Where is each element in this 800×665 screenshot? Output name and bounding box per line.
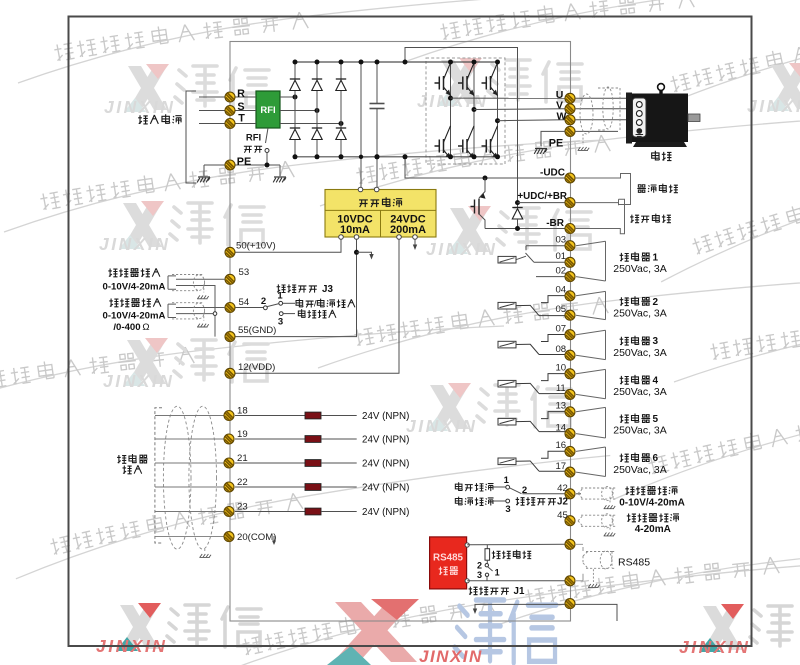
- svg-text:JINXIN: JINXIN: [747, 96, 800, 116]
- svg-text:21: 21: [237, 453, 248, 464]
- svg-text:24V (NPN): 24V (NPN): [362, 483, 409, 494]
- svg-text:45: 45: [557, 510, 568, 521]
- svg-text:4-20mA: 4-20mA: [635, 524, 671, 535]
- svg-text:Ω: Ω: [142, 322, 149, 333]
- svg-text:RS485: RS485: [433, 553, 464, 564]
- svg-text:16: 16: [555, 440, 566, 451]
- svg-text:J1: J1: [514, 586, 525, 597]
- svg-text:RFI: RFI: [260, 105, 275, 116]
- svg-text:250Vac, 3A: 250Vac, 3A: [613, 464, 667, 476]
- svg-text:14: 14: [555, 422, 566, 433]
- svg-text:+UDC/+BR: +UDC/+BR: [517, 191, 567, 202]
- svg-text:3: 3: [505, 504, 510, 515]
- svg-text:200mA: 200mA: [390, 224, 426, 236]
- svg-text:R: R: [237, 88, 245, 100]
- svg-text:W: W: [557, 111, 567, 123]
- svg-text:JINXIN: JINXIN: [104, 97, 175, 117]
- svg-text:24V (NPN): 24V (NPN): [362, 507, 409, 518]
- svg-text:RS485: RS485: [618, 556, 650, 568]
- svg-text:S: S: [237, 101, 244, 113]
- svg-text:22: 22: [237, 477, 248, 488]
- svg-text:02: 02: [555, 265, 566, 276]
- svg-text:23: 23: [237, 501, 248, 512]
- svg-text:24V (NPN): 24V (NPN): [362, 459, 409, 470]
- svg-text:0-10V/4-20mA: 0-10V/4-20mA: [103, 281, 166, 292]
- svg-text:250Vac, 3A: 250Vac, 3A: [613, 425, 667, 437]
- svg-text:20(COM): 20(COM): [237, 532, 276, 543]
- svg-text:JINXIN: JINXIN: [426, 239, 497, 259]
- svg-text:01: 01: [555, 251, 566, 262]
- svg-text:-UDC: -UDC: [540, 168, 565, 179]
- svg-text:J3: J3: [322, 284, 333, 295]
- svg-text:0-10V/4-20mA: 0-10V/4-20mA: [619, 498, 685, 509]
- svg-text:55(GND): 55(GND): [238, 325, 276, 336]
- svg-text:54: 54: [239, 297, 250, 308]
- svg-text:24V (NPN): 24V (NPN): [362, 435, 409, 446]
- svg-text:PE: PE: [549, 138, 563, 150]
- svg-text:/0-400: /0-400: [113, 322, 140, 333]
- svg-text:RFI: RFI: [246, 133, 261, 144]
- svg-text:50(+10V): 50(+10V): [236, 240, 276, 251]
- svg-text:5: 5: [653, 414, 659, 425]
- svg-text:11: 11: [556, 383, 566, 394]
- svg-text:0-10V/4-20mA: 0-10V/4-20mA: [103, 310, 166, 321]
- svg-text:10: 10: [555, 363, 566, 374]
- svg-text:17: 17: [555, 461, 566, 472]
- svg-text:3: 3: [653, 336, 659, 347]
- svg-text:JINXIN: JINXIN: [419, 647, 483, 665]
- svg-text:6: 6: [653, 453, 659, 464]
- svg-text:JINXIN: JINXIN: [406, 416, 477, 436]
- svg-text:08: 08: [555, 344, 566, 355]
- svg-text:24V (NPN): 24V (NPN): [362, 411, 409, 422]
- svg-text:3: 3: [477, 570, 482, 580]
- svg-text:04: 04: [555, 285, 566, 296]
- svg-text:1: 1: [653, 252, 659, 263]
- svg-text:250Vac, 3A: 250Vac, 3A: [613, 308, 667, 320]
- svg-text:19: 19: [237, 429, 248, 440]
- svg-text:10mA: 10mA: [340, 224, 370, 236]
- svg-text:2: 2: [522, 485, 527, 496]
- svg-text:3: 3: [278, 316, 283, 327]
- svg-text:1: 1: [495, 567, 500, 577]
- svg-text:JINXIN: JINXIN: [103, 371, 174, 391]
- svg-text:53: 53: [239, 267, 250, 278]
- svg-text:42: 42: [557, 483, 568, 494]
- svg-text:250Vac, 3A: 250Vac, 3A: [613, 263, 667, 275]
- svg-text:12(VDD): 12(VDD): [238, 362, 275, 373]
- svg-text:2: 2: [261, 296, 266, 307]
- svg-text:JINXIN: JINXIN: [99, 234, 170, 254]
- svg-text:-BR: -BR: [546, 218, 565, 229]
- svg-text:18: 18: [237, 405, 248, 416]
- svg-text:1: 1: [504, 475, 510, 486]
- svg-text:/: /: [314, 299, 317, 310]
- svg-text:4: 4: [653, 375, 659, 386]
- svg-text:250Vac, 3A: 250Vac, 3A: [613, 386, 667, 398]
- svg-text:250Vac, 3A: 250Vac, 3A: [613, 347, 667, 359]
- svg-text:13: 13: [555, 401, 566, 412]
- svg-text:JINXIN: JINXIN: [417, 91, 488, 111]
- svg-text:T: T: [238, 112, 245, 124]
- svg-text:2: 2: [477, 560, 482, 570]
- svg-text:03: 03: [555, 235, 566, 246]
- svg-text:PE: PE: [237, 156, 251, 168]
- svg-text:2: 2: [653, 297, 659, 308]
- svg-text:05: 05: [555, 304, 566, 315]
- svg-text:07: 07: [555, 324, 566, 335]
